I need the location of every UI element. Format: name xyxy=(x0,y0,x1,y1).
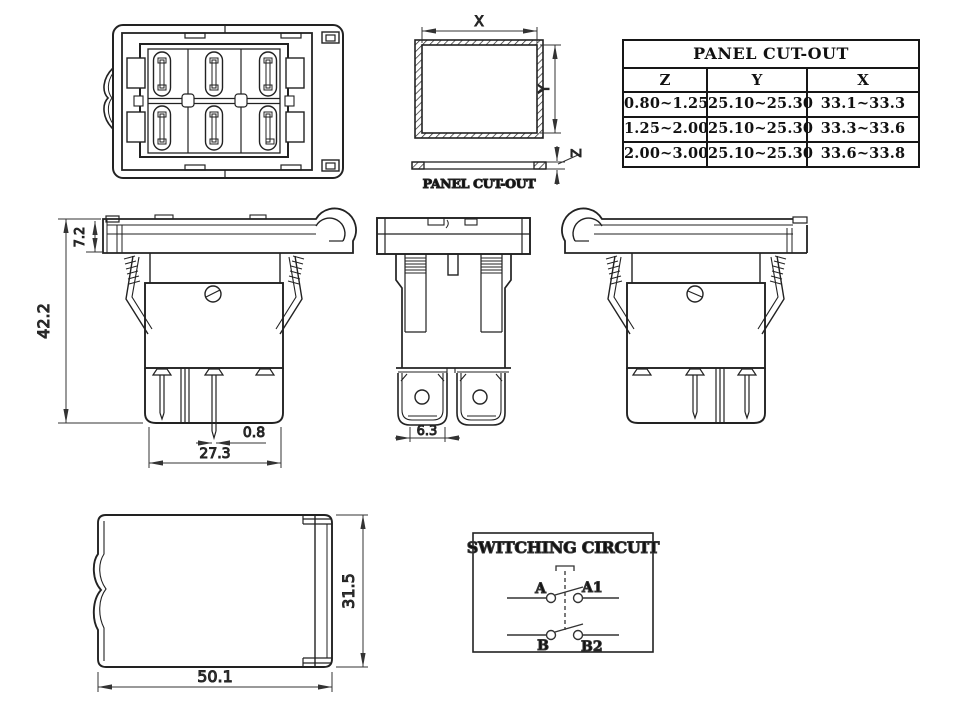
dim-total-height xyxy=(58,219,143,423)
terminal-slots xyxy=(154,52,277,150)
panel-cutout-caption: PANEL CUT-OUT xyxy=(423,176,537,191)
circuit-title: SWITCHING CIRCUIT xyxy=(467,538,660,557)
cell-x1: 33.1~33.3 xyxy=(807,92,919,117)
dim-terminal-width-label: 6.3 xyxy=(417,424,438,439)
table-title: PANEL CUT-OUT xyxy=(623,40,919,68)
top-view: 50.1 31.5 xyxy=(94,515,368,692)
terminal-blade-left xyxy=(398,373,447,425)
table-header-row: Z Y X xyxy=(623,68,919,92)
dim-bezel-height-label: 7.2 xyxy=(73,227,88,248)
col-header-z: Z xyxy=(623,68,707,92)
table-row: 1.25~2.00 25.10~25.30 33.3~33.6 xyxy=(623,117,919,142)
dim-terminal-thickness-label: 0.8 xyxy=(243,425,265,441)
front-view xyxy=(104,25,343,178)
panel-edge-section xyxy=(412,162,546,169)
cutout-x-label: X xyxy=(474,14,484,30)
mounting-ear-top xyxy=(322,32,339,43)
cell-z2: 1.25~2.00 xyxy=(623,117,707,142)
table-row: 0.80~1.25 25.10~25.30 33.1~33.3 xyxy=(623,92,919,117)
engineering-drawing-sheet: X Y Z PANEL CUT-OUT xyxy=(0,0,960,708)
terminal-pins xyxy=(633,368,756,423)
panel-cutout-diagram: X Y Z PANEL CUT-OUT xyxy=(412,14,585,191)
switching-circuit-diagram: SWITCHING CIRCUIT A A1 B B2 xyxy=(467,533,660,655)
table-row: 2.00~3.00 25.10~25.30 33.6~33.8 xyxy=(623,142,919,167)
cell-y2: 25.10~25.30 xyxy=(707,117,807,142)
contact-a xyxy=(547,594,556,603)
dim-total-height-label: 42.2 xyxy=(34,303,53,339)
cell-y1: 25.10~25.30 xyxy=(707,92,807,117)
spring-clip-left xyxy=(124,256,152,334)
cutout-z-label: Z xyxy=(570,148,585,157)
col-header-x: X xyxy=(807,68,919,92)
terminal-b-label: B xyxy=(537,638,549,654)
spring-clip-left xyxy=(606,256,634,334)
side-view-right xyxy=(562,208,807,423)
terminal-a1-label: A1 xyxy=(581,580,603,596)
screw-slot-icon xyxy=(205,286,221,302)
dim-bezel-height xyxy=(86,221,103,252)
blade-hole-left xyxy=(415,390,429,404)
dim-frame-length-label: 50.1 xyxy=(197,667,233,686)
screw-slot-icon xyxy=(687,286,703,302)
end-view: 6.3 xyxy=(377,218,530,442)
cell-y3: 25.10~25.30 xyxy=(707,142,807,167)
cell-z3: 2.00~3.00 xyxy=(623,142,707,167)
mounting-ear-bottom xyxy=(322,160,339,171)
terminal-blade-right xyxy=(457,373,505,425)
cell-x3: 33.6~33.8 xyxy=(807,142,919,167)
panel-cutout-table: PANEL CUT-OUT Z Y X 0.80~1.25 25.10~25.3… xyxy=(622,39,920,168)
cell-x2: 33.3~33.6 xyxy=(807,117,919,142)
clip-tower-left xyxy=(405,254,426,332)
cutout-y-label: Y xyxy=(537,84,553,94)
terminal-a-label: A xyxy=(534,581,547,597)
actuator-bracket xyxy=(556,566,574,571)
blade-hole-right xyxy=(473,390,487,404)
clip-tower-right xyxy=(481,254,502,332)
side-view-left: 42.2 7.2 0.8 27.3 xyxy=(34,208,356,468)
terminal-b2-label: B2 xyxy=(581,639,603,655)
cell-z1: 0.80~1.25 xyxy=(623,92,707,117)
dim-body-width-label: 27.3 xyxy=(199,446,230,462)
spring-clip-right xyxy=(758,256,786,334)
dim-frame-depth-label: 31.5 xyxy=(339,573,358,609)
col-header-y: Y xyxy=(707,68,807,92)
